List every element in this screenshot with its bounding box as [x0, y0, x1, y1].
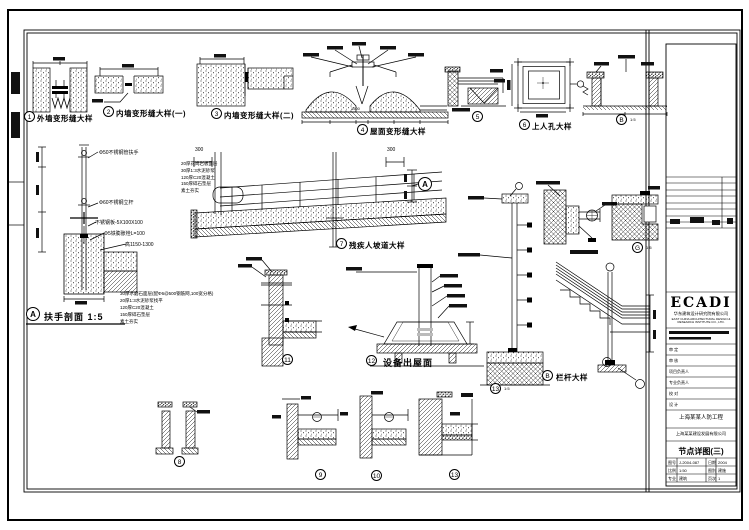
field-proofread: 校 对	[669, 391, 678, 397]
detail-13-badge: 13	[490, 383, 501, 394]
detail-9-wall-slab	[272, 396, 348, 459]
detail-12-badge: 12	[366, 355, 377, 366]
detail-1-caption: 外墙变形缝大样	[37, 113, 93, 124]
detail-2-caption: 内墙变形缝大样(一)	[116, 108, 186, 119]
detail-12-caption: 设备出屋面	[383, 356, 433, 369]
client-name: 上海某某建设发展有限公司	[666, 432, 736, 436]
detail-7-caption: 残疾人坡道大样	[349, 240, 405, 251]
drawing-sheet: 1 外墙变形缝大样 2 内墙变形缝大样(一) 3 内墙变形缝大样(二) 4 屋面…	[0, 0, 749, 530]
ramp-dim-right: 300	[387, 147, 395, 153]
tb-disc-value: 建筑	[679, 476, 687, 482]
detail-4-dim-label: 1500	[351, 106, 360, 111]
drawing-title: 节点详图(三)	[666, 446, 736, 457]
detail-13-pole	[458, 183, 550, 398]
tb-date-label: 日期	[708, 460, 716, 466]
company-name-en: EAST CHINA ARCHITECTURAL DESIGN & RESEAR…	[667, 318, 735, 325]
detail-12-equipment-roof	[346, 264, 484, 366]
detail-3-caption: 内墙变形缝大样(二)	[224, 110, 294, 121]
field-designer: 设 计	[669, 402, 678, 408]
detail-G-corner	[612, 186, 660, 240]
detail-3-badge: 3	[211, 108, 222, 119]
detail-pit-scale: 1:5	[630, 117, 636, 122]
tb-scale-value: 1:50	[679, 468, 687, 473]
detail-4-badge: 4	[357, 124, 368, 135]
detail-pit	[583, 55, 667, 116]
detail-A-caption: 扶手剖面 1:5	[44, 310, 104, 323]
field-project-lead: 项目负责人	[669, 369, 689, 375]
floor-layer-notes: 30厚水磨石面层(配Φ6@500钢筋网,100宽分格) 20厚1:3水泥砂浆找平…	[120, 290, 213, 325]
detail-7-badge: 7	[336, 238, 347, 249]
tb-page-value: 1	[718, 476, 720, 481]
detail-9-badge: 9	[315, 469, 326, 480]
detail-bracket	[536, 181, 617, 254]
detail-3-interior-wall-joint-2	[197, 54, 293, 106]
detail-2-badge: 2	[103, 106, 114, 117]
detail-5-badge: 5	[472, 111, 483, 122]
detail-2-interior-wall-joint-1	[92, 64, 163, 103]
field-checked: 审 核	[669, 358, 678, 364]
detail-8-badge: 8	[174, 456, 185, 467]
ramp-dim-left: 300	[195, 147, 203, 153]
field-discipline-lead: 专业负责人	[669, 380, 689, 386]
handrail-note-5: 高1150-1300	[125, 241, 154, 248]
detail-B-stair-railing	[556, 262, 656, 389]
handrail-note-2: Φ60不锈钢立杆	[99, 199, 134, 206]
detail-G-scale: 1:5	[646, 245, 652, 250]
project-name: 上海某某人防工程	[666, 416, 736, 422]
detail-6-caption: 上人孔大样	[532, 121, 572, 132]
handrail-note-1: Φ50不锈钢管扶手	[99, 149, 139, 156]
detail-pit-badge: B	[616, 114, 627, 125]
detail-B-caption: 栏杆大样	[556, 372, 588, 383]
handrail-note-3: 不锈钢板-5X100X100	[95, 219, 143, 226]
ecadi-logo: ECADI	[666, 295, 736, 311]
tb-type-value: 建施	[718, 468, 726, 474]
tb-type-label: 图别	[708, 468, 716, 474]
detail-4-caption: 屋面变形缝大样	[370, 126, 426, 137]
detail-A-badge: A	[26, 307, 40, 321]
detail-4-roof-joint	[302, 42, 448, 124]
tb-no-label: 图号	[668, 460, 676, 466]
tb-disc-label: 专业	[668, 476, 676, 482]
detail-6-badge: 6	[519, 119, 530, 130]
detail-13b-badge: 13	[449, 469, 460, 480]
detail-13-scale: 1:5	[504, 386, 510, 391]
detail-1-badge: 1	[24, 111, 35, 122]
detail-10-badge: 10	[371, 470, 382, 481]
detail-7-ramp	[191, 152, 446, 247]
cad-linework	[0, 0, 749, 530]
detail-10-wall-slab	[360, 391, 408, 458]
field-approved: 审 定	[669, 347, 678, 353]
ramp-layer-notes: 20厚花岗岩板面层 30厚1:3水泥砂浆 120厚C20混凝土 150厚碎石垫层…	[181, 161, 218, 195]
detail-6-manhole	[507, 58, 584, 118]
company-name: 华东建筑设计研究院有限公司	[667, 312, 735, 316]
tb-no-value: J-2004-087	[679, 460, 699, 465]
tb-scale-label: 比例	[668, 468, 676, 474]
binding-strip	[8, 72, 24, 225]
detail-11-wall-slab	[238, 257, 322, 366]
tb-date-value: 2004	[718, 460, 727, 465]
handrail-note-4: Φ5铁膨胀栓L=100	[104, 230, 145, 237]
detail-B-badge: B	[542, 370, 553, 381]
tb-page-label: 页次	[708, 476, 716, 482]
ramp-section-mark: A	[418, 177, 432, 191]
detail-5-flashing	[445, 67, 506, 112]
detail-8-channel	[156, 402, 210, 454]
detail-G-badge: G	[632, 242, 643, 253]
detail-13-wall-corner	[419, 392, 478, 455]
detail-11-badge: 11	[282, 354, 293, 365]
detail-1-exterior-wall-joint	[33, 57, 87, 112]
